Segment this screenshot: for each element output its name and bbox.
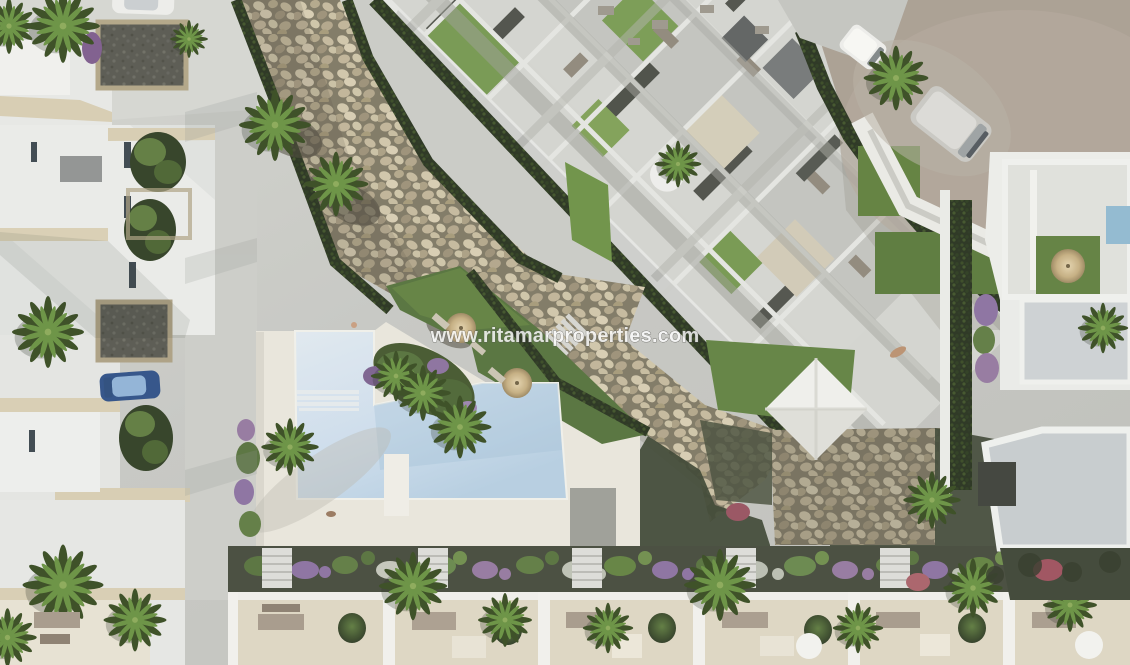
svg-text:www.ritamarproperties.com: www.ritamarproperties.com — [430, 325, 700, 347]
